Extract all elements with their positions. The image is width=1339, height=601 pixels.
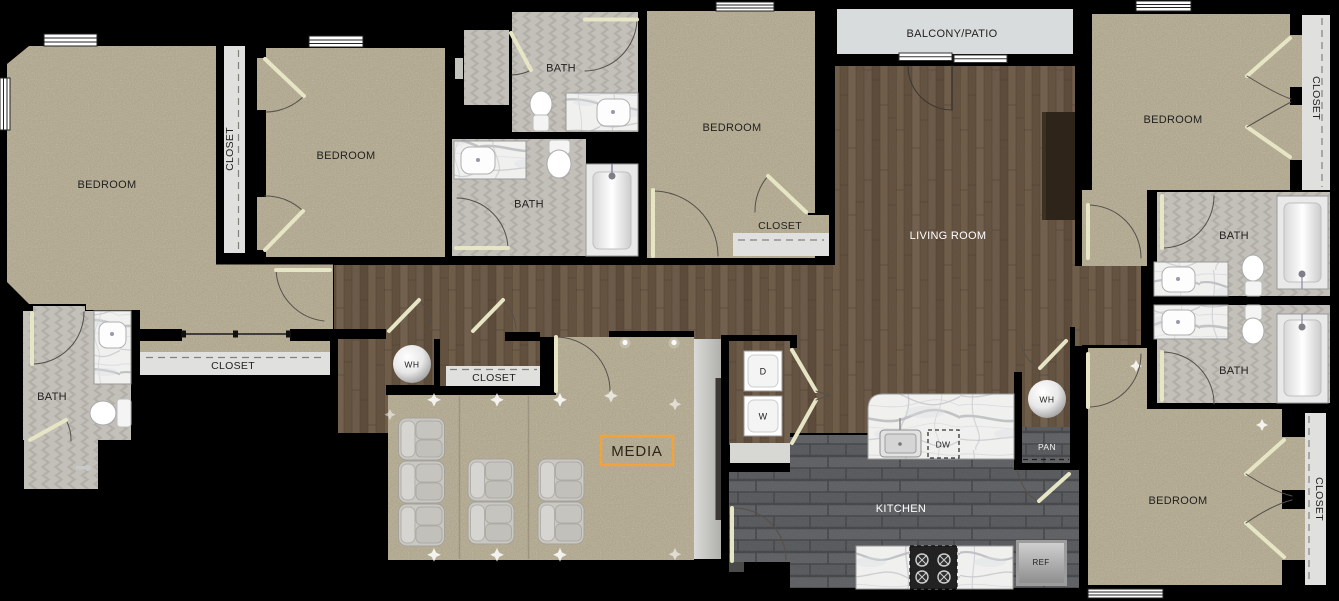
svg-text:CLOSET: CLOSET — [1310, 76, 1322, 120]
svg-text:LIVING ROOM: LIVING ROOM — [910, 230, 987, 242]
svg-text:W: W — [759, 412, 768, 422]
svg-text:BEDROOM: BEDROOM — [317, 150, 376, 162]
svg-text:DW: DW — [936, 440, 951, 450]
svg-text:BATH: BATH — [1219, 230, 1249, 242]
svg-text:BATH: BATH — [1219, 365, 1249, 377]
svg-text:CLOSET: CLOSET — [1313, 477, 1325, 521]
svg-text:BEDROOM: BEDROOM — [703, 122, 762, 134]
svg-text:MEDIA: MEDIA — [611, 443, 663, 460]
svg-text:D: D — [760, 367, 767, 377]
svg-text:BATH: BATH — [546, 63, 576, 75]
svg-text:CLOSET: CLOSET — [758, 220, 802, 232]
svg-text:BALCONY/PATIO: BALCONY/PATIO — [907, 28, 998, 40]
svg-text:BEDROOM: BEDROOM — [1144, 114, 1203, 126]
svg-text:KITCHEN: KITCHEN — [876, 503, 926, 515]
svg-text:BATH: BATH — [514, 199, 544, 211]
svg-text:CLOSET: CLOSET — [472, 372, 516, 384]
svg-text:BEDROOM: BEDROOM — [1149, 495, 1208, 507]
svg-text:CLOSET: CLOSET — [224, 127, 236, 171]
svg-text:WH: WH — [404, 360, 419, 370]
svg-text:CLOSET: CLOSET — [211, 360, 255, 372]
svg-text:WH: WH — [1039, 395, 1054, 405]
svg-text:PAN: PAN — [1038, 442, 1056, 452]
svg-text:BATH: BATH — [37, 391, 67, 403]
svg-text:BEDROOM: BEDROOM — [78, 179, 137, 191]
svg-text:REF: REF — [1033, 558, 1050, 567]
